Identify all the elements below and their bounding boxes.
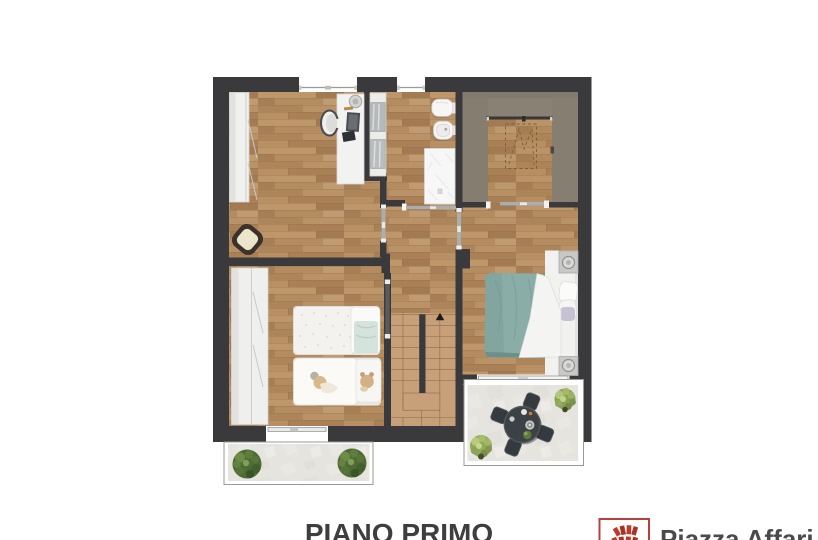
svg-text:Piazza Affari: Piazza Affari bbox=[660, 524, 814, 540]
svg-text:PIANO PRIMO: PIANO PRIMO bbox=[305, 518, 493, 540]
